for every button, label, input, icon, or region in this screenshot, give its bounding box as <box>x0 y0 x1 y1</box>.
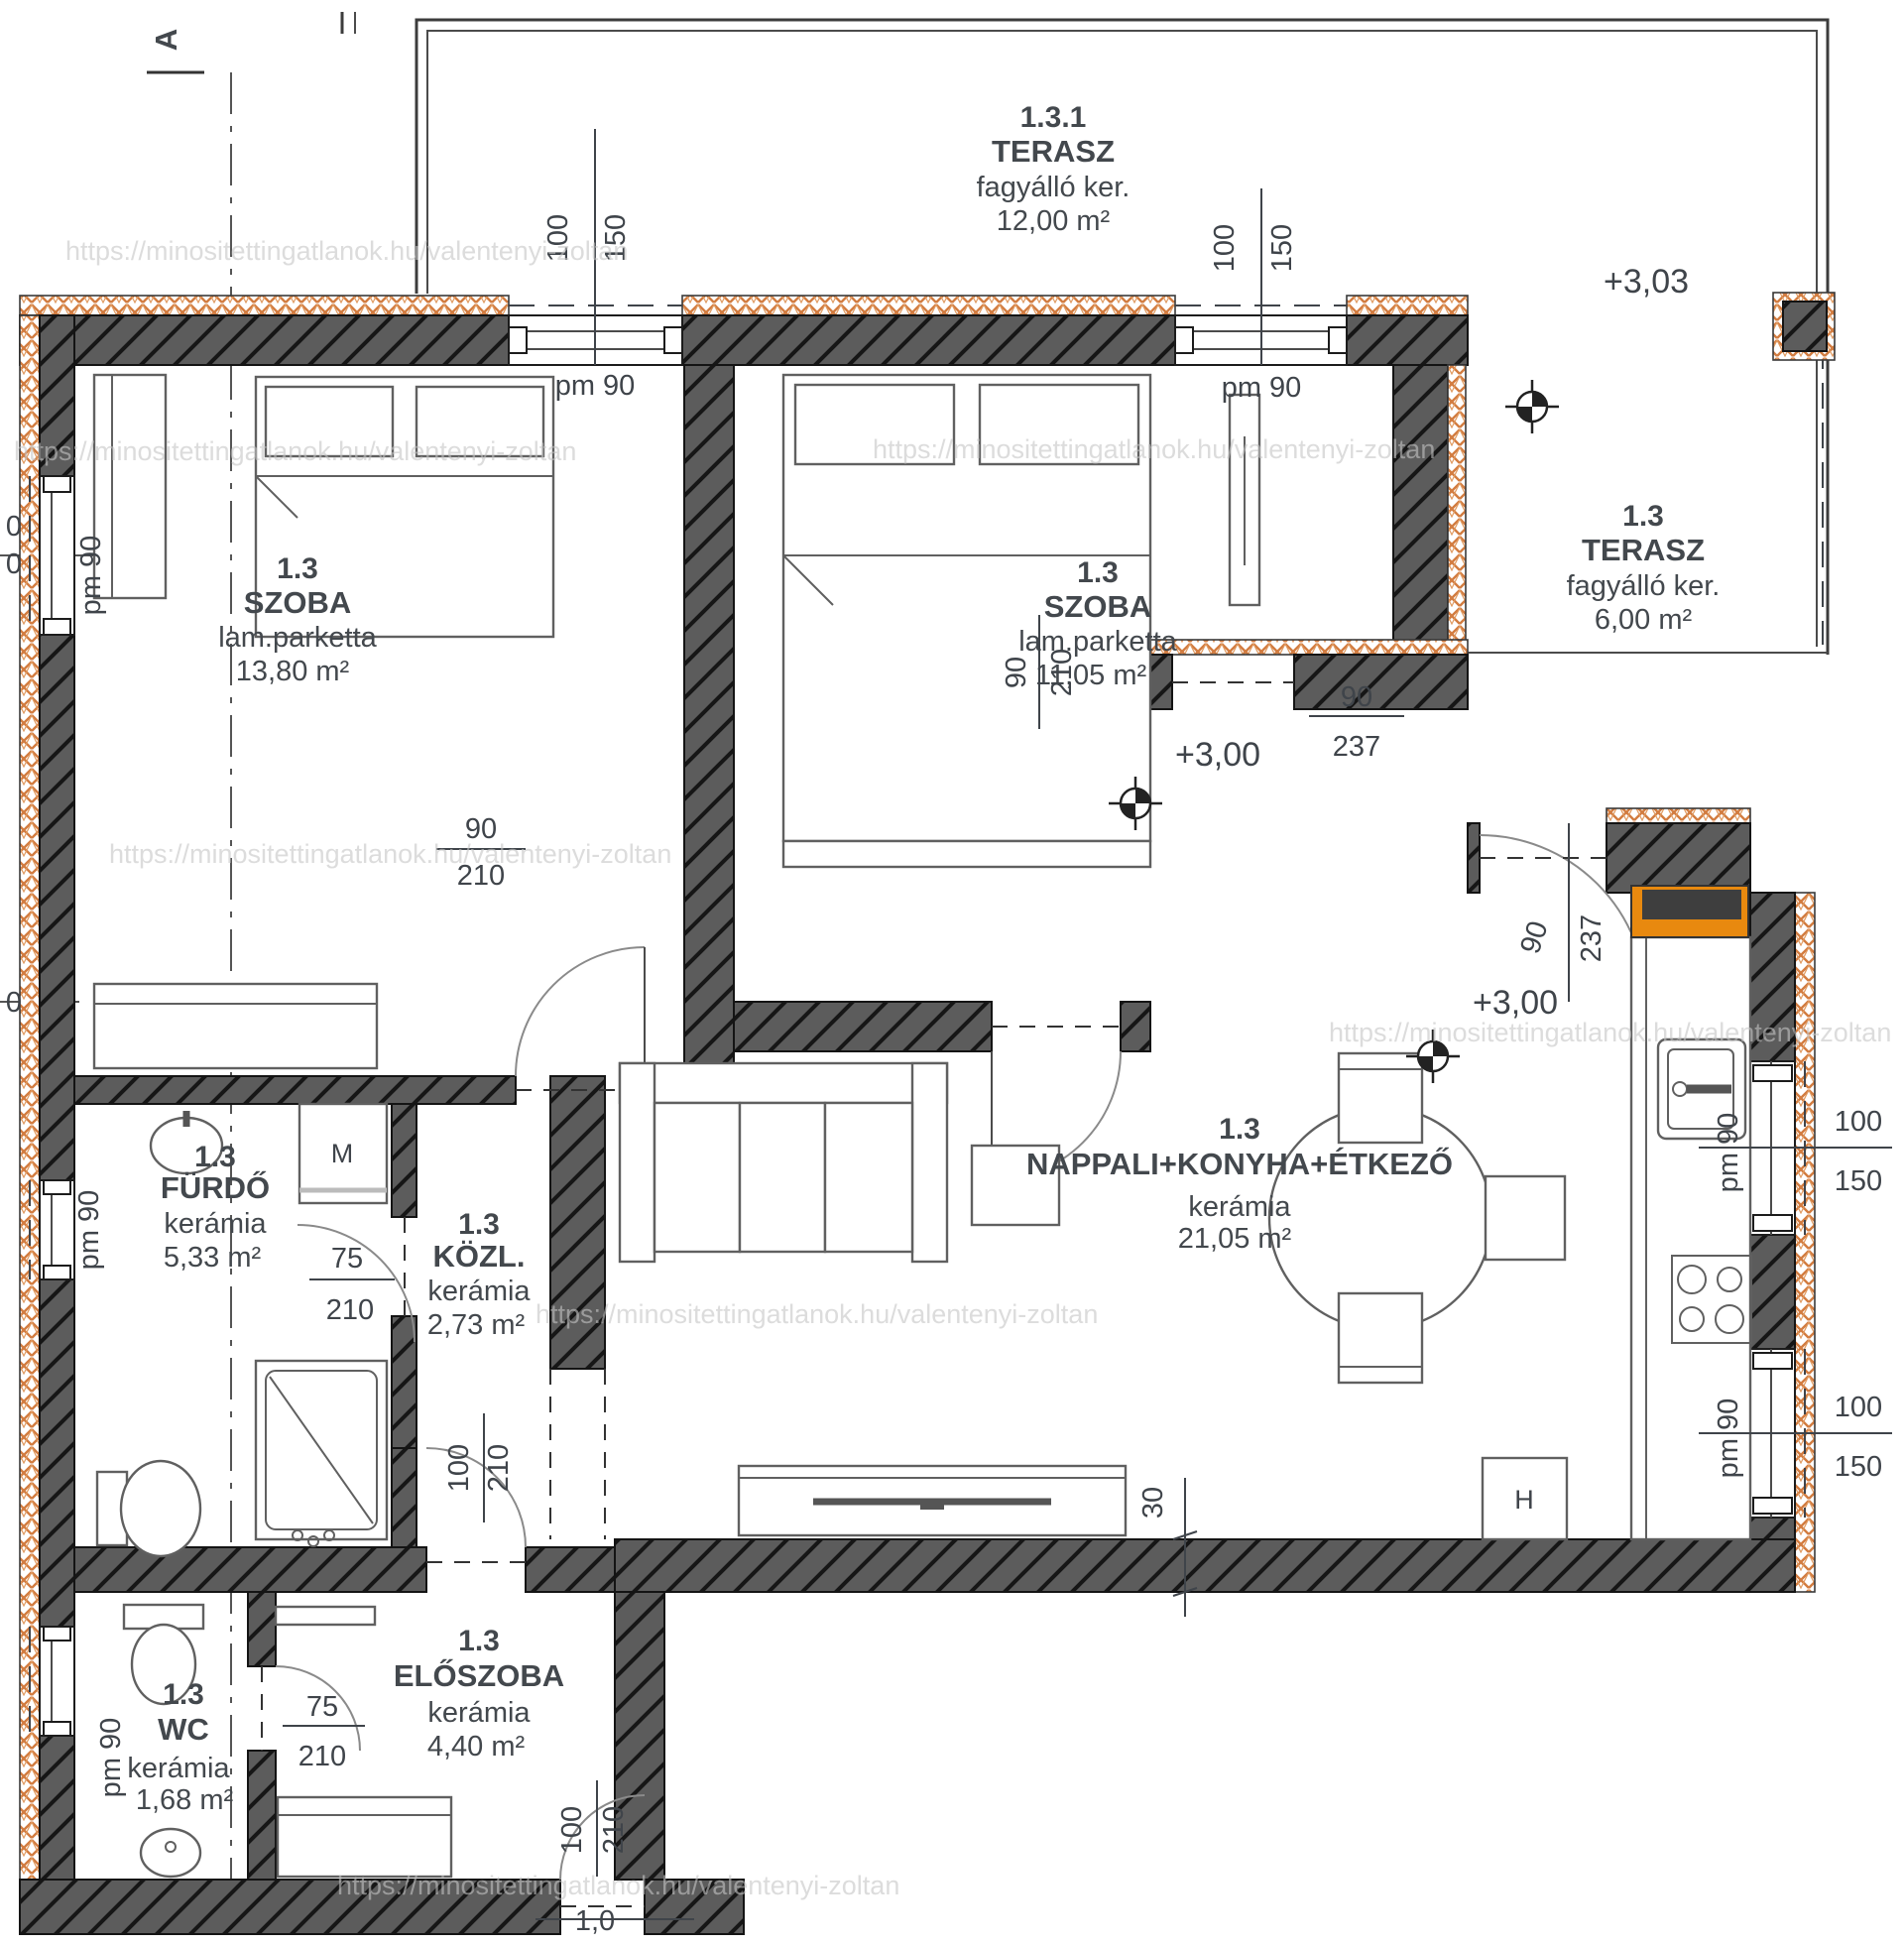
dim-pm90: pm 90 <box>555 370 636 402</box>
shoe-cabinet <box>278 1797 451 1877</box>
dim-150: 150 <box>1266 224 1298 272</box>
watermark: https://minositettingatlanok.hu/valenten… <box>65 236 628 266</box>
washing-machine: M <box>299 1104 387 1203</box>
wall-hall-terrace-1 <box>1150 655 1172 709</box>
dim-cut-2: 0 <box>6 548 22 580</box>
wall-left-4 <box>40 1736 74 1880</box>
terrace-pillar <box>1773 293 1835 360</box>
room-name: FÜRDŐ <box>161 1169 270 1205</box>
room-name: TERASZ <box>1582 533 1705 567</box>
room-finish: kerámia <box>127 1753 230 1784</box>
wall-terrace-bottom-1 <box>1468 823 1480 893</box>
room-area: 12,00 m² <box>997 205 1111 237</box>
room-area: 5,33 m² <box>164 1242 262 1274</box>
dim-1-0: 1,0 <box>575 1905 615 1937</box>
room-finish: kerámia <box>164 1208 267 1240</box>
room-number: 1.3 <box>458 1625 500 1657</box>
wall-hall-terrace-2 <box>1294 655 1468 709</box>
insulation-top-1 <box>20 296 509 315</box>
wall-wc-right-2 <box>248 1751 276 1880</box>
level-terrace: +3,03 <box>1604 263 1689 301</box>
kitchen-corner-counter <box>1631 886 1748 937</box>
floor-plan-page: A <box>0 0 1904 1946</box>
entry-shelf <box>276 1607 375 1625</box>
insulation-hall-terrace <box>1150 640 1468 655</box>
wall-bath-right-2 <box>392 1316 416 1448</box>
dim-100: 100 <box>1835 1392 1882 1423</box>
wardrobe-bedroom2 <box>1230 395 1259 605</box>
dim-210: 210 <box>326 1294 374 1326</box>
bath-toilet <box>97 1461 200 1556</box>
watermark: https://minositettingatlanok.hu/valenten… <box>109 839 671 869</box>
dim-210: 210 <box>1046 649 1078 696</box>
fridge: H <box>1483 1458 1567 1539</box>
wall-left-3 <box>40 1279 74 1627</box>
tv-sideboard <box>739 1466 1126 1535</box>
wall-bedroom2-bottom-1 <box>734 1002 992 1051</box>
opening-hall-living <box>550 1369 605 1539</box>
wc-sink <box>141 1829 200 1877</box>
sofa <box>620 1063 947 1262</box>
room-area: 6,00 m² <box>1595 604 1693 636</box>
section-marker-label: A <box>149 29 183 51</box>
dim-window-top-2: 100 150 pm 90 <box>1209 188 1301 404</box>
room-name: SZOBA <box>1044 589 1152 624</box>
room-number: 1.3 <box>163 1678 204 1711</box>
dim-pm90-left-3: pm 90 <box>95 1718 127 1798</box>
room-finish: kerámia <box>427 1697 531 1729</box>
room-finish: fagyálló ker. <box>1567 570 1721 602</box>
room-area: 1,68 m² <box>136 1784 234 1816</box>
wall-top-2 <box>682 315 1175 365</box>
washing-machine-label: M <box>331 1139 354 1168</box>
room-name: KÖZL. <box>433 1239 526 1274</box>
room-area: 4,40 m² <box>427 1731 526 1763</box>
dim-90: 90 <box>1514 917 1554 958</box>
wall-terrace-bottom-2 <box>1606 823 1750 893</box>
wall-left-2 <box>40 635 74 1180</box>
dim-150: 150 <box>1835 1165 1882 1197</box>
dim-pm90: pm 90 <box>1222 372 1302 404</box>
watermark: https://minositettingatlanok.hu/valenten… <box>1329 1018 1891 1047</box>
dim-pm90-left-1: pm 90 <box>75 536 107 616</box>
wall-bath-bottom-1 <box>74 1547 426 1592</box>
wall-bath-bottom-2 <box>526 1547 615 1592</box>
level-marker-terrace <box>1505 380 1559 433</box>
insulation-top-2 <box>682 296 1175 315</box>
room-finish: fagyálló ker. <box>977 172 1130 203</box>
dim-cut-3: 0 <box>6 987 22 1019</box>
dim-90: 90 <box>1341 681 1372 713</box>
room-number: 1.3 <box>1622 500 1664 533</box>
dim-pm90: pm 90 <box>1713 1399 1744 1479</box>
insulation-terrace-bottom <box>1606 808 1750 823</box>
room-number: 1.3 <box>277 552 318 585</box>
watermark: https://minositettingatlanok.hu/valenten… <box>337 1871 899 1900</box>
dim-75: 75 <box>331 1243 363 1275</box>
dim-100: 100 <box>1835 1106 1882 1138</box>
room-name: NAPPALI+KONYHA+ÉTKEZŐ <box>1026 1146 1453 1181</box>
room-label-terrace-right: 1.3 TERASZ fagyálló ker. 6,00 m² <box>1567 500 1721 636</box>
dim-75: 75 <box>306 1691 338 1723</box>
dim-237: 237 <box>1576 914 1607 962</box>
wall-bath-right-1 <box>392 1104 416 1217</box>
wall-top-1 <box>20 315 509 365</box>
wall-top-3 <box>1347 315 1468 365</box>
dim-door-entry-hall: 100 210 <box>443 1413 515 1522</box>
wall-wc-right-1 <box>248 1592 276 1666</box>
room-number: 1.3 <box>1219 1113 1260 1146</box>
room-label-wc: 1.3 WC kerámia 1,68 m² <box>127 1678 233 1816</box>
wall-right-2 <box>1750 1235 1795 1349</box>
room-finish: kerámia <box>1188 1191 1291 1223</box>
wall-bedroom2-bottom-2 <box>1121 1002 1150 1051</box>
wall-bedroom2-terrace <box>1393 365 1448 655</box>
sideboard-bedroom1 <box>94 984 377 1068</box>
watermark: https://minositettingatlanok.hu/valenten… <box>14 436 576 466</box>
dim-30: 30 <box>1137 1487 1169 1519</box>
insulation-top-3 <box>1347 296 1468 315</box>
dim-210: 210 <box>298 1741 346 1772</box>
dim-door-terrace-kitchen: 90 237 <box>1514 823 1607 1002</box>
room-label-terrace-top: 1.3.1 TERASZ fagyálló ker. 12,00 m² <box>977 101 1130 237</box>
wall-bedroom-divider <box>684 365 734 1076</box>
room-area: 21,05 m² <box>1178 1223 1292 1255</box>
watermark: https://minositettingatlanok.hu/valenten… <box>535 1299 1098 1329</box>
room-number: 1.3 <box>194 1141 236 1173</box>
dim-237: 237 <box>1333 731 1380 763</box>
level-hall: +3,00 <box>1175 736 1260 774</box>
room-name: SZOBA <box>244 585 352 620</box>
room-finish: lam.parketta <box>218 622 377 654</box>
dim-cut-1: 0 <box>6 511 22 543</box>
watermark: https://minositettingatlanok.hu/valenten… <box>873 434 1435 464</box>
dim-door-bath: 75 210 <box>309 1243 395 1326</box>
wall-bath-right-3 <box>392 1448 416 1547</box>
room-name: WC <box>158 1712 209 1747</box>
dim-150: 150 <box>1835 1451 1882 1483</box>
dim-100: 100 <box>556 1806 588 1854</box>
room-number: 1.3 <box>458 1208 500 1241</box>
dim-210: 210 <box>483 1444 515 1492</box>
dim-90: 90 <box>1001 657 1032 688</box>
level-living: +3,00 <box>1473 984 1558 1022</box>
dim-100: 100 <box>1209 224 1241 272</box>
room-number: 1.3.1 <box>1020 101 1087 134</box>
room-area: 13,80 m² <box>236 656 350 687</box>
dim-pm90: pm 90 <box>1713 1113 1744 1193</box>
room-finish: kerámia <box>427 1276 531 1307</box>
room-name: ELŐSZOBA <box>394 1657 564 1693</box>
floor-plan-drawing: A <box>0 0 1904 1946</box>
fridge-label: H <box>1514 1485 1534 1515</box>
dim-pm90-left-2: pm 90 <box>73 1190 105 1271</box>
wall-living-bottom <box>615 1539 1795 1592</box>
room-label-entry: 1.3 ELŐSZOBA kerámia 4,40 m² <box>394 1625 564 1763</box>
room-number: 1.3 <box>1077 556 1119 589</box>
dim-210: 210 <box>598 1806 630 1854</box>
dim-door-wc: 75 210 <box>283 1691 365 1772</box>
room-name: TERASZ <box>992 134 1115 169</box>
wall-bedroom1-bottom-1 <box>74 1076 516 1104</box>
dining-table <box>1269 1053 1565 1383</box>
dim-100: 100 <box>443 1444 475 1492</box>
room-finish: lam.parketta <box>1018 626 1177 658</box>
insulation-bedroom2-terrace <box>1448 365 1466 655</box>
shower <box>256 1361 387 1546</box>
room-label-hall: 1.3 KÖZL. kerámia 2,73 m² <box>427 1208 532 1341</box>
room-area: 2,73 m² <box>427 1309 526 1341</box>
